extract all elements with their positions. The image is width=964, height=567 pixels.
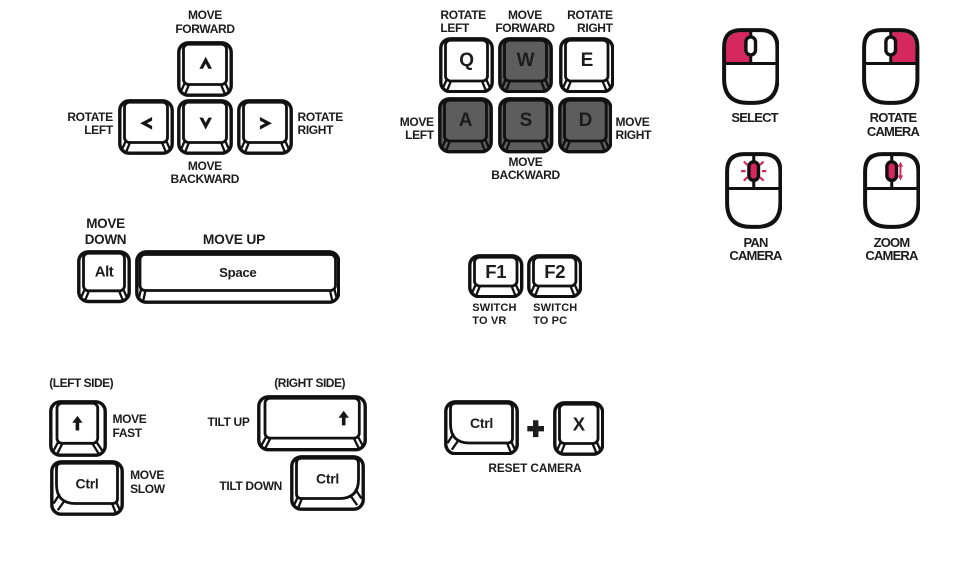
svg-text:Ctrl: Ctrl xyxy=(470,415,493,431)
svg-text:A: A xyxy=(458,110,472,131)
svg-text:E: E xyxy=(580,50,592,71)
svg-text:F2: F2 xyxy=(544,261,565,282)
svg-text:F1: F1 xyxy=(485,261,506,282)
svg-text:D: D xyxy=(578,110,591,131)
svg-text:Q: Q xyxy=(459,50,473,71)
svg-text:W: W xyxy=(517,50,535,71)
svg-text:Alt: Alt xyxy=(94,264,113,281)
svg-text:X: X xyxy=(572,413,585,434)
svg-text:S: S xyxy=(520,110,532,131)
svg-text:Ctrl: Ctrl xyxy=(316,470,339,486)
svg-text:Space: Space xyxy=(219,265,256,280)
svg-text:Ctrl: Ctrl xyxy=(75,475,98,491)
